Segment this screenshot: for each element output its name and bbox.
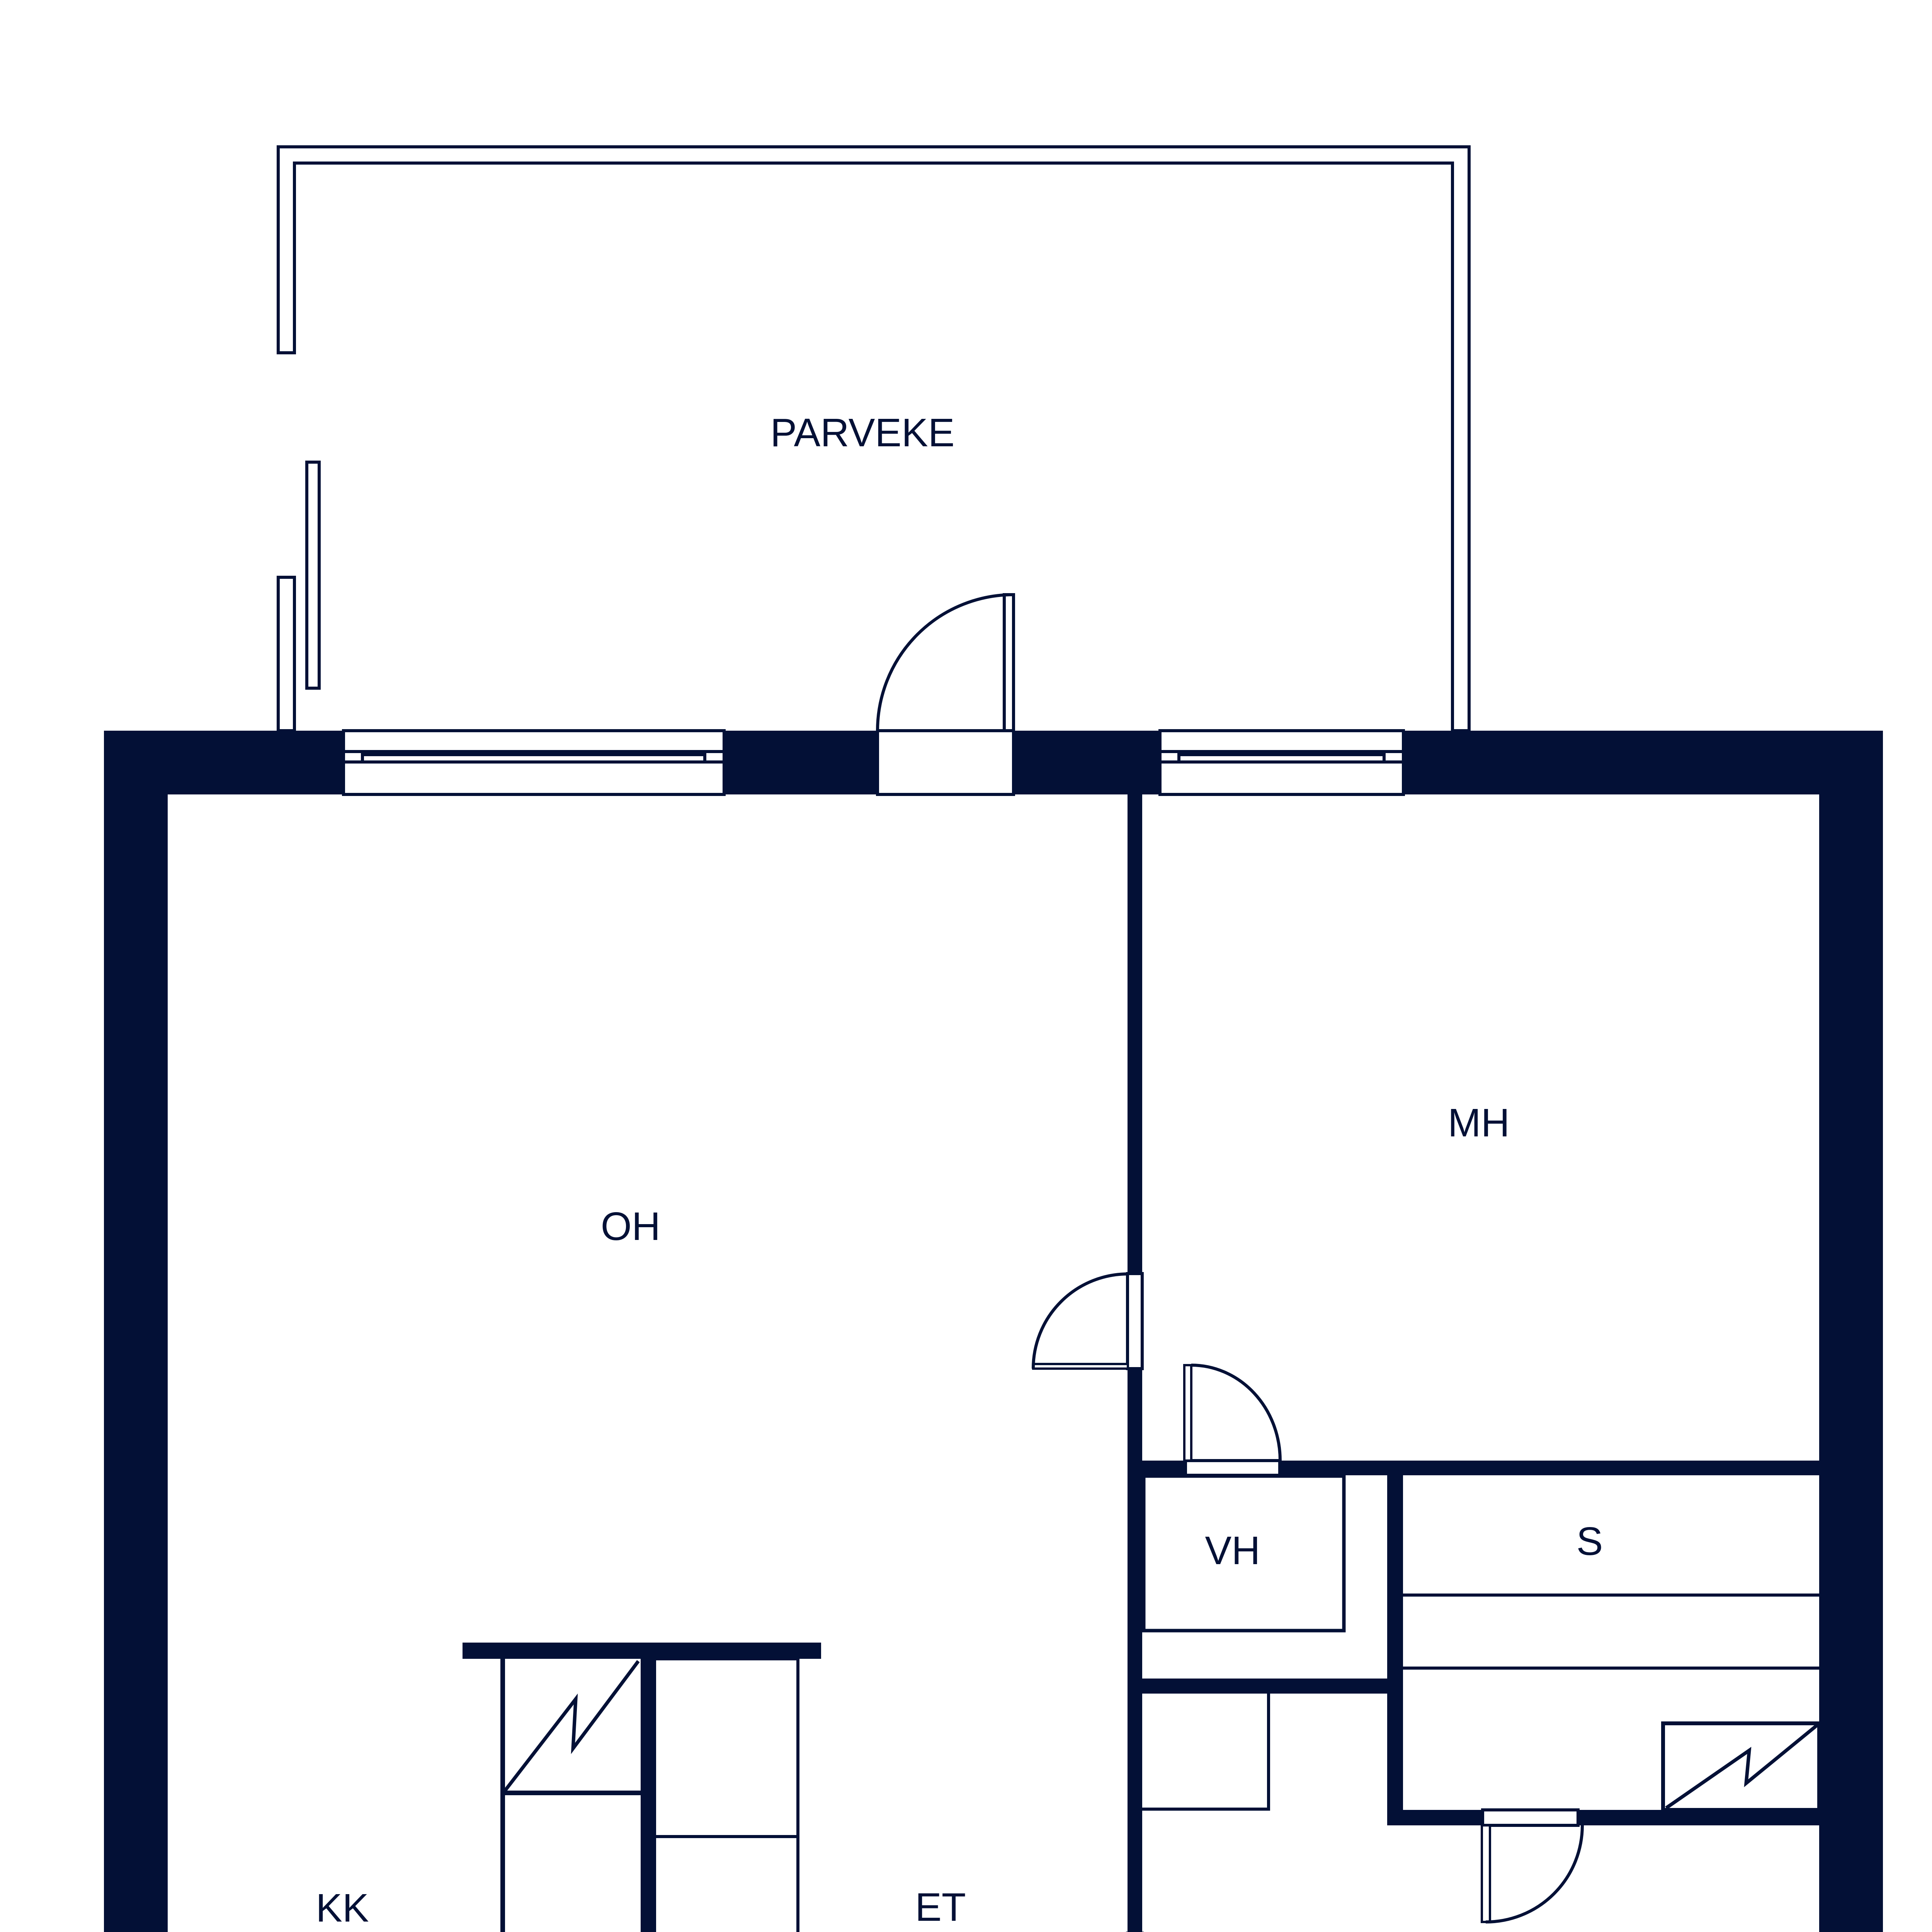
- svg-text:S: S: [1577, 1519, 1603, 1563]
- svg-text:VH: VH: [1205, 1528, 1260, 1573]
- svg-text:PARVEKE: PARVEKE: [770, 410, 954, 455]
- svg-text:OH: OH: [601, 1204, 661, 1248]
- svg-text:ET: ET: [915, 1885, 966, 1929]
- svg-text:MH: MH: [1448, 1100, 1510, 1145]
- svg-text:KK: KK: [316, 1886, 369, 1930]
